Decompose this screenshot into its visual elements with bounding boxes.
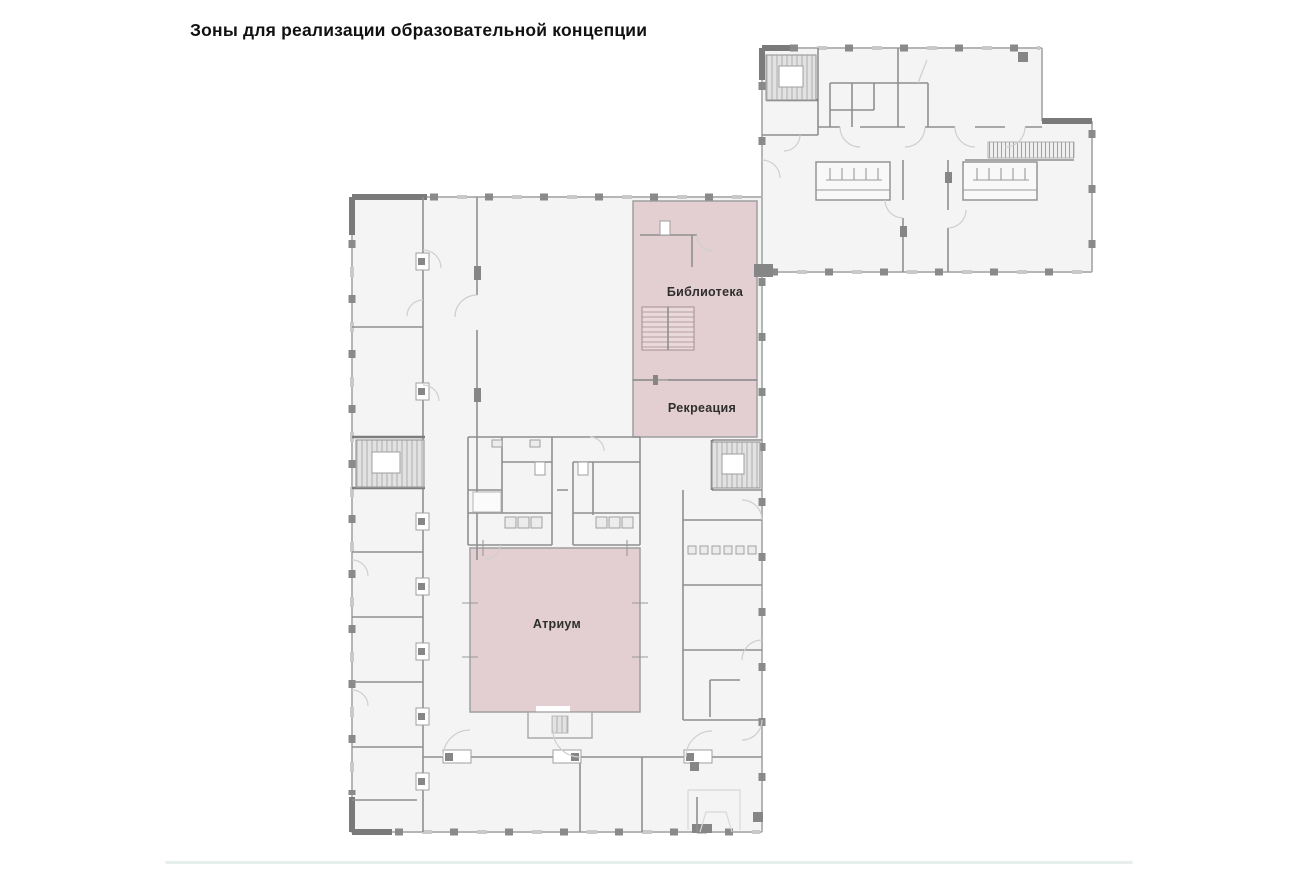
floor-plan-page: Зоны для реализации образовательной конц… — [0, 0, 1305, 870]
floor-plan — [0, 0, 1305, 870]
library-detail — [660, 221, 670, 235]
zone-label-atrium: Атриум — [533, 617, 581, 631]
classroom-table-right — [963, 162, 1037, 200]
zone-label-library: Библиотека — [667, 285, 743, 299]
zone-label-recreation: Рекреация — [668, 401, 736, 415]
shelf-band — [988, 142, 1074, 158]
classroom-table-left — [816, 162, 890, 200]
footer-divider — [165, 861, 1133, 864]
